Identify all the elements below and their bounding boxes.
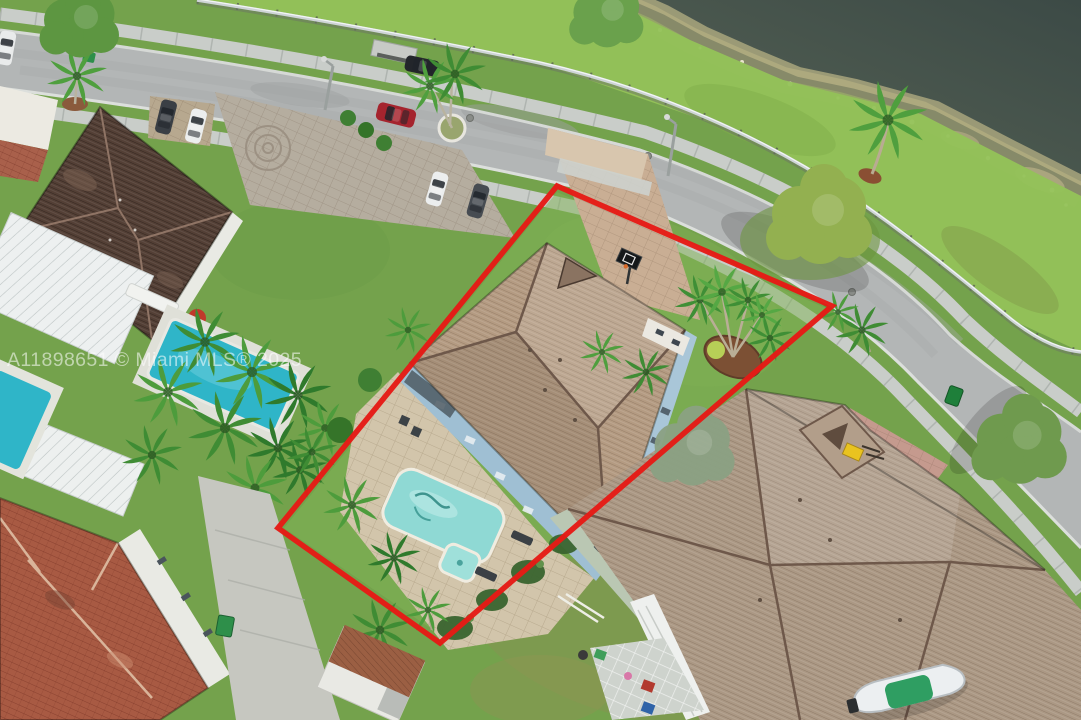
- mls-watermark: A11898651 © Miami MLS® 2025: [7, 349, 302, 371]
- patio-toy-pink: [624, 672, 632, 680]
- green-bin-path: [215, 615, 234, 637]
- patio-grill: [578, 650, 588, 660]
- tree-top-left: [40, 0, 120, 58]
- tree-top-center: [569, 0, 643, 47]
- aerial-photo: A11898651 © Miami MLS® 2025: [0, 0, 1081, 720]
